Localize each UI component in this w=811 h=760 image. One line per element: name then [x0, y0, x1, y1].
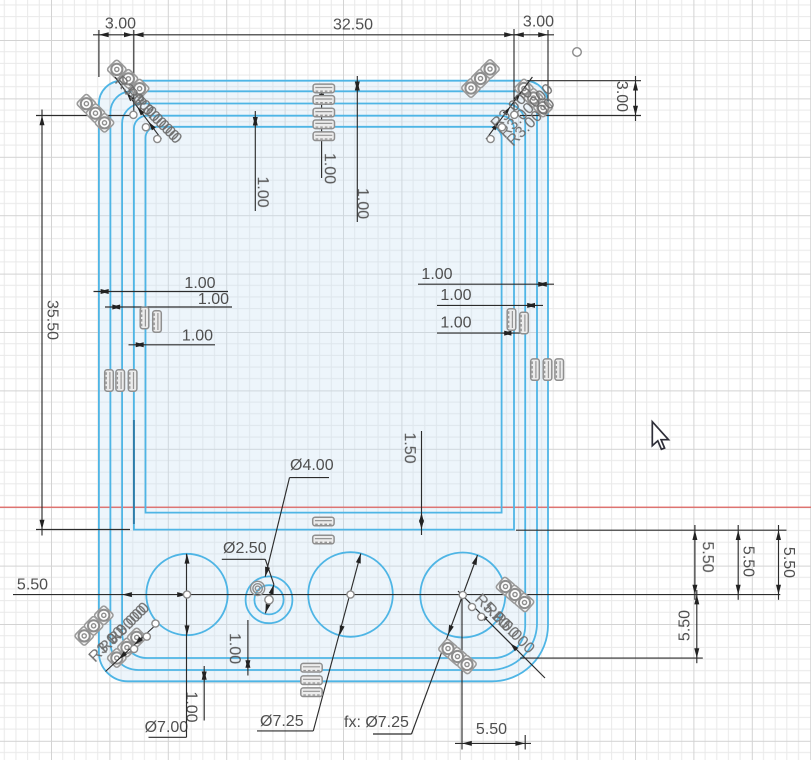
svg-text:3.00: 3.00: [105, 16, 136, 33]
svg-text:5.50: 5.50: [17, 577, 48, 594]
svg-text:1.00: 1.00: [440, 287, 471, 304]
svg-text:1.50: 1.50: [401, 432, 418, 463]
svg-text:1.00: 1.00: [254, 176, 271, 207]
svg-text:1.00: 1.00: [354, 188, 371, 219]
svg-text:1.00: 1.00: [226, 633, 243, 664]
svg-text:Ø2.50: Ø2.50: [223, 540, 267, 557]
svg-text:5.50: 5.50: [699, 541, 716, 572]
svg-text:1.00: 1.00: [183, 691, 200, 722]
svg-text:Ø4.00: Ø4.00: [290, 457, 334, 474]
svg-text:1.00: 1.00: [182, 328, 213, 345]
svg-text:5.50: 5.50: [677, 610, 694, 641]
svg-text:1.00: 1.00: [321, 153, 338, 184]
svg-text:1.00: 1.00: [421, 266, 452, 283]
svg-text:1.00: 1.00: [184, 275, 215, 292]
svg-text:32.50: 32.50: [333, 16, 373, 33]
svg-text:1.00: 1.00: [198, 291, 229, 308]
svg-text:5.50: 5.50: [780, 547, 797, 578]
svg-text:Ø7.25: Ø7.25: [260, 713, 304, 730]
svg-text:3.00: 3.00: [523, 14, 554, 31]
svg-text:3.00: 3.00: [613, 81, 630, 112]
svg-text:5.50: 5.50: [740, 546, 757, 577]
svg-text:5.50: 5.50: [476, 721, 507, 738]
svg-text:fx: Ø7.25: fx: Ø7.25: [344, 714, 409, 731]
svg-text:35.50: 35.50: [44, 300, 61, 340]
svg-text:1.00: 1.00: [440, 315, 471, 332]
svg-text:Ø7.00: Ø7.00: [145, 719, 189, 736]
